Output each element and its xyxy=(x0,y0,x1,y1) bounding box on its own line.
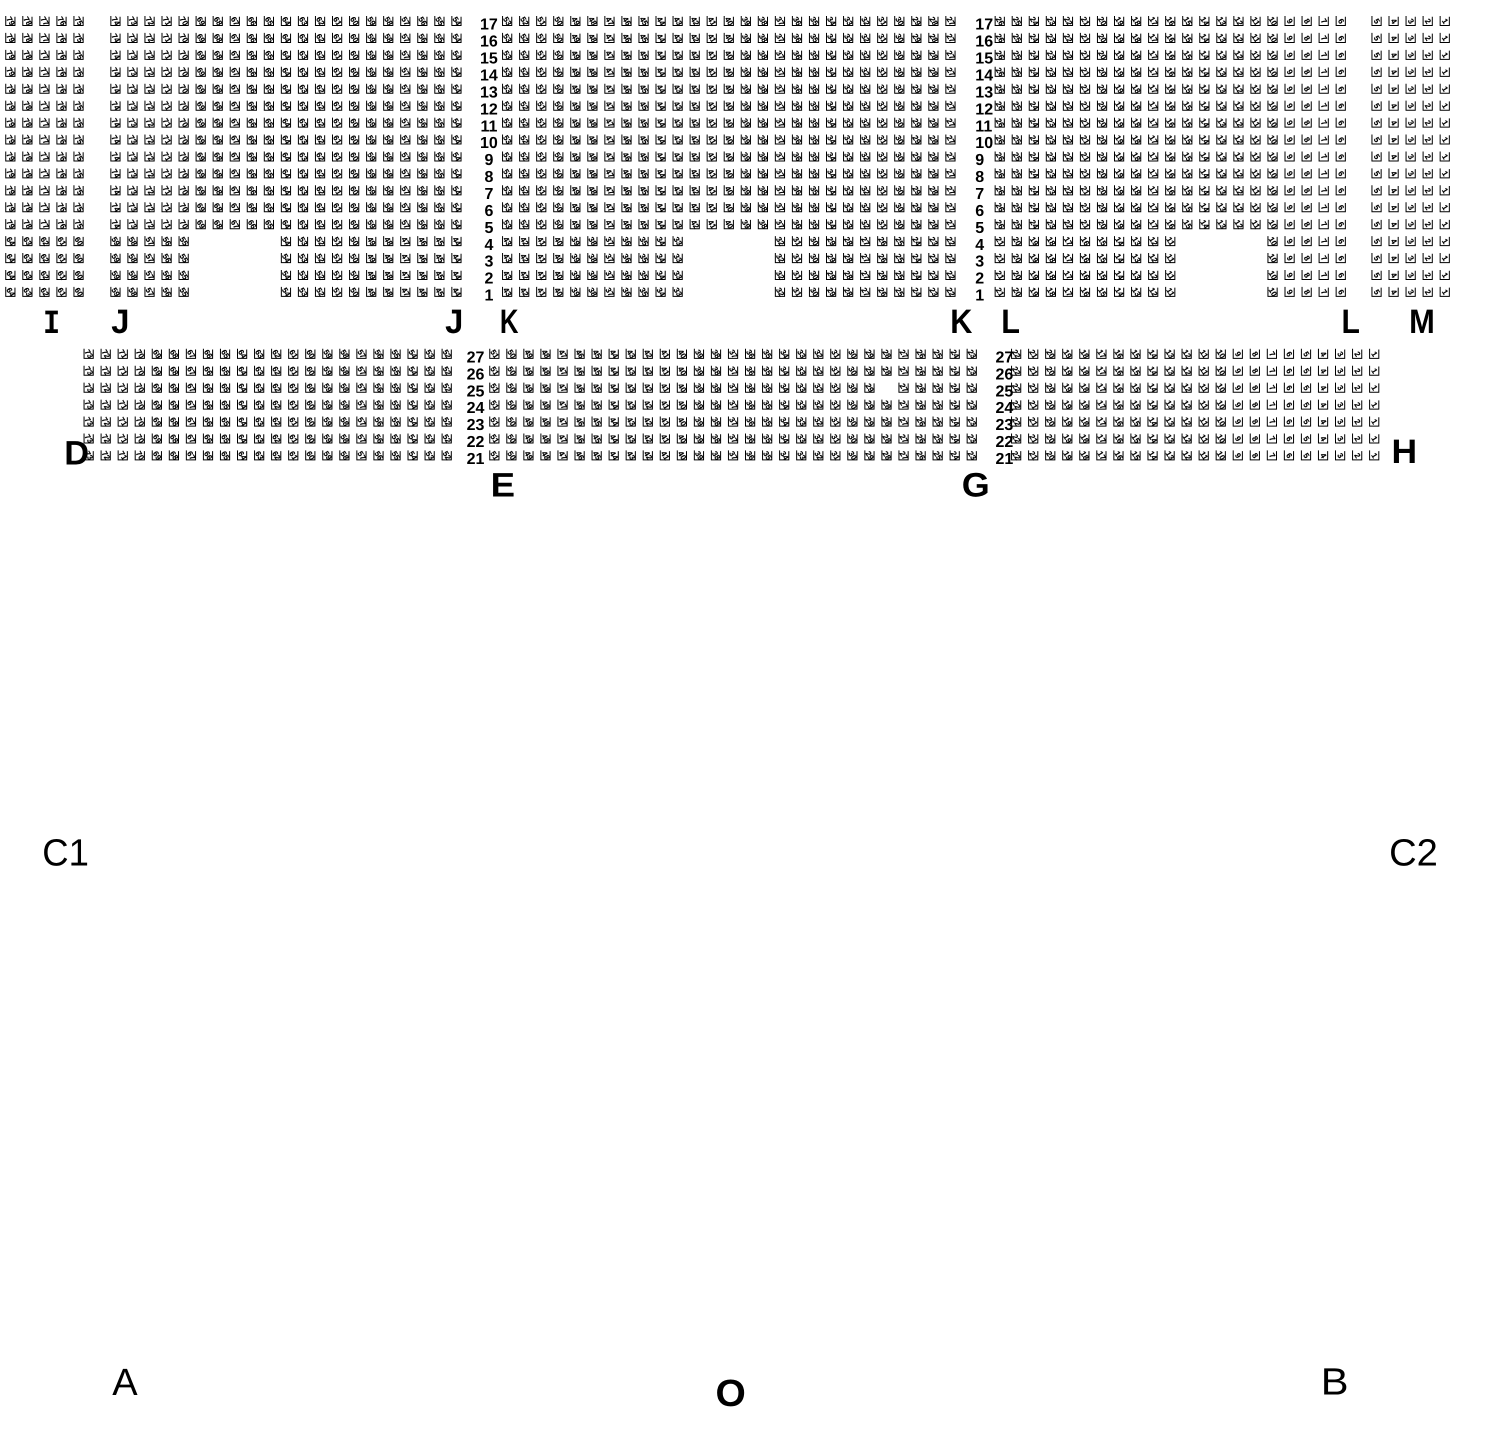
svg-text:25: 25 xyxy=(996,383,1014,400)
svg-text:1: 1 xyxy=(975,288,984,305)
svg-text:15: 15 xyxy=(480,51,498,68)
svg-text:4: 4 xyxy=(484,237,493,254)
svg-text:M: M xyxy=(1409,303,1435,341)
svg-text:B: B xyxy=(1321,1361,1349,1403)
svg-text:H: H xyxy=(1392,433,1418,471)
svg-text:14: 14 xyxy=(480,67,498,84)
svg-text:10: 10 xyxy=(480,135,498,152)
svg-text:C1: C1 xyxy=(42,833,89,875)
svg-text:13: 13 xyxy=(480,84,498,101)
svg-text:11: 11 xyxy=(975,118,992,135)
svg-text:17: 17 xyxy=(480,17,498,34)
svg-text:1: 1 xyxy=(484,288,493,305)
svg-text:27: 27 xyxy=(996,349,1014,366)
svg-text:21: 21 xyxy=(467,451,485,468)
svg-text:17: 17 xyxy=(975,17,993,34)
svg-text:2: 2 xyxy=(975,271,984,288)
svg-text:24: 24 xyxy=(996,400,1014,417)
svg-text:26: 26 xyxy=(996,366,1014,383)
svg-text:10: 10 xyxy=(975,135,993,152)
svg-text:O: O xyxy=(716,1373,746,1415)
svg-text:E: E xyxy=(491,466,515,504)
svg-text:14: 14 xyxy=(975,67,993,84)
svg-text:J: J xyxy=(111,303,129,341)
svg-text:G: G xyxy=(962,466,990,504)
svg-text:25: 25 xyxy=(467,383,485,400)
svg-text:12: 12 xyxy=(975,101,993,118)
svg-text:22: 22 xyxy=(467,434,485,451)
svg-text:7: 7 xyxy=(975,186,984,203)
svg-text:23: 23 xyxy=(467,417,485,434)
svg-text:5: 5 xyxy=(975,220,984,237)
svg-text:2: 2 xyxy=(484,271,493,288)
svg-text:6: 6 xyxy=(484,203,493,220)
svg-text:3: 3 xyxy=(975,254,984,271)
svg-text:9: 9 xyxy=(975,152,984,169)
svg-text:23: 23 xyxy=(996,417,1014,434)
svg-text:11: 11 xyxy=(480,118,497,135)
svg-text:16: 16 xyxy=(975,34,993,51)
svg-text:K: K xyxy=(500,303,519,341)
svg-text:4: 4 xyxy=(975,237,984,254)
svg-text:I: I xyxy=(43,306,60,344)
svg-text:9: 9 xyxy=(484,152,493,169)
svg-text:L: L xyxy=(1001,303,1020,341)
svg-text:L: L xyxy=(1342,303,1360,341)
svg-text:7: 7 xyxy=(484,186,493,203)
svg-text:13: 13 xyxy=(975,84,993,101)
svg-text:22: 22 xyxy=(996,434,1014,451)
svg-text:21: 21 xyxy=(996,451,1014,468)
svg-text:A: A xyxy=(112,1362,138,1404)
svg-text:16: 16 xyxy=(480,34,498,51)
svg-text:24: 24 xyxy=(467,400,485,417)
svg-text:26: 26 xyxy=(467,366,485,383)
svg-text:5: 5 xyxy=(484,220,493,237)
svg-text:J: J xyxy=(445,303,463,341)
svg-text:15: 15 xyxy=(975,51,993,68)
svg-text:C2: C2 xyxy=(1389,833,1438,875)
svg-text:8: 8 xyxy=(484,169,493,186)
svg-text:6: 6 xyxy=(975,203,984,220)
svg-text:12: 12 xyxy=(480,101,498,118)
svg-text:8: 8 xyxy=(975,169,984,186)
svg-text:K: K xyxy=(950,303,972,341)
svg-text:D: D xyxy=(64,435,89,473)
svg-text:27: 27 xyxy=(467,349,485,366)
svg-text:3: 3 xyxy=(484,254,493,271)
